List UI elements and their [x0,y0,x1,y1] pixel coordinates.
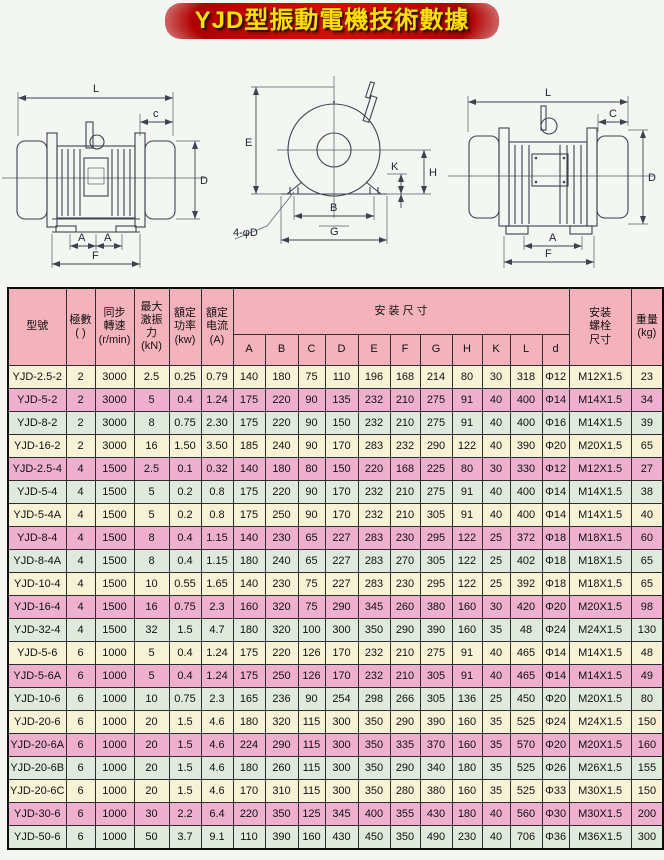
value-cell: 350 [358,757,390,780]
value-cell: 16 [134,435,169,458]
value-cell: 25 [482,688,510,711]
value-cell: 180 [233,757,265,780]
value-cell: 115 [298,757,325,780]
value-cell: Φ20 [542,435,569,458]
value-cell: 40 [482,826,510,849]
value-cell: 465 [510,642,542,665]
value-cell: 35 [482,780,510,803]
motor-end-view-drawing: E K H B G 4-φD [221,56,441,274]
value-cell: 170 [233,780,265,803]
value-cell: 122 [452,435,482,458]
value-cell: 227 [325,550,358,573]
table-row: YJD-50-661000503.79.11103901604304503504… [8,826,663,849]
value-cell: 1500 [95,504,134,527]
value-cell: 330 [510,458,542,481]
value-cell: 372 [510,527,542,550]
value-cell: 232 [358,642,390,665]
value-cell: M14X1.5 [569,481,631,504]
value-cell: 400 [510,389,542,412]
value-cell: Φ20 [542,734,569,757]
value-cell: 300 [325,780,358,803]
value-cell: 290 [420,435,452,458]
value-cell: 75 [298,573,325,596]
value-cell: 0.4 [169,527,201,550]
value-cell: 1000 [95,826,134,849]
model-cell: YJD-20-6A [8,734,66,757]
value-cell: 0.1 [169,458,201,481]
col-header-dim-G: G [420,335,452,366]
value-cell: 283 [358,527,390,550]
value-cell: 3000 [95,366,134,389]
col-header-model: 型號 [8,288,66,366]
value-cell: 122 [452,550,482,573]
value-cell: 1500 [95,573,134,596]
value-cell: 200 [631,803,663,826]
technical-drawings: L c [0,56,664,278]
dim-label: H [429,167,437,179]
value-cell: 283 [358,573,390,596]
value-cell: 295 [420,573,452,596]
col-header-dim-L: L [510,335,542,366]
datasheet-page: YJD型振動電機技術數據 L c [0,0,664,860]
value-cell: 1.5 [169,757,201,780]
value-cell: 39 [631,412,663,435]
value-cell: 214 [420,366,452,389]
value-cell: 224 [233,734,265,757]
value-cell: 175 [233,504,265,527]
value-cell: 140 [233,458,265,481]
value-cell: 230 [265,573,298,596]
value-cell: 38 [631,481,663,504]
model-cell: YJD-16-2 [8,435,66,458]
table-row: YJD-5-6A6100050.41.241752501261702322103… [8,665,663,688]
value-cell: 220 [358,458,390,481]
value-cell: 320 [265,619,298,642]
value-cell: 232 [390,435,420,458]
dim-label: A [104,232,112,244]
value-cell: 40 [482,803,510,826]
value-cell: 160 [298,826,325,849]
value-cell: Φ33 [542,780,569,803]
value-cell: 390 [510,435,542,458]
value-cell: 122 [452,527,482,550]
value-cell: 25 [482,573,510,596]
value-cell: 16 [134,596,169,619]
value-cell: 275 [420,642,452,665]
value-cell: 175 [233,481,265,504]
value-cell: 6 [66,734,95,757]
value-cell: 180 [452,757,482,780]
value-cell: 40 [482,642,510,665]
value-cell: 115 [298,734,325,757]
value-cell: 6 [66,711,95,734]
value-cell: 402 [510,550,542,573]
value-cell: 220 [265,481,298,504]
dim-label: A [549,232,557,244]
value-cell: 4 [66,550,95,573]
value-cell: 450 [510,688,542,711]
value-cell: 300 [325,757,358,780]
value-cell: 1.5 [169,780,201,803]
col-header-speed: 同步 轉速 (r/min) [95,288,134,366]
value-cell: 175 [233,665,265,688]
value-cell: 260 [390,596,420,619]
table-row: YJD-30-661000302.26.42203501253454003554… [8,803,663,826]
value-cell: 227 [325,527,358,550]
value-cell: 35 [482,711,510,734]
value-cell: 210 [390,642,420,665]
value-cell: 91 [452,665,482,688]
value-cell: 91 [452,481,482,504]
value-cell: M14X1.5 [569,412,631,435]
value-cell: M36X1.5 [569,826,631,849]
table-row: YJD-10-441500100.551.6514023075227283230… [8,573,663,596]
value-cell: 20 [134,711,169,734]
value-cell: 91 [452,642,482,665]
value-cell: 40 [482,389,510,412]
value-cell: 2 [66,435,95,458]
value-cell: 280 [390,780,420,803]
value-cell: 350 [358,780,390,803]
value-cell: 230 [452,826,482,849]
value-cell: M14X1.5 [569,665,631,688]
value-cell: 392 [510,573,542,596]
table-row: YJD-5-66100050.41.2417522012617023221027… [8,642,663,665]
value-cell: 136 [452,688,482,711]
value-cell: 90 [298,435,325,458]
value-cell: 1.15 [201,550,233,573]
value-cell: 150 [631,711,663,734]
value-cell: 5 [134,665,169,688]
value-cell: 232 [358,504,390,527]
value-cell: 1000 [95,642,134,665]
value-cell: Φ18 [542,550,569,573]
value-cell: 8 [134,527,169,550]
dim-label: E [245,137,252,149]
col-header-dim-H: H [452,335,482,366]
value-cell: 4.6 [201,780,233,803]
col-header-current: 額定 电流 (A) [201,288,233,366]
value-cell: 30 [482,596,510,619]
value-cell: 240 [265,550,298,573]
value-cell: 0.8 [201,504,233,527]
value-cell: 65 [298,527,325,550]
value-cell: 320 [265,711,298,734]
value-cell: 90 [298,481,325,504]
value-cell: 5 [134,642,169,665]
value-cell: 1000 [95,665,134,688]
value-cell: 305 [420,504,452,527]
value-cell: 290 [390,619,420,642]
value-cell: 210 [390,504,420,527]
value-cell: 6 [66,803,95,826]
value-cell: 180 [265,458,298,481]
value-cell: 227 [325,573,358,596]
value-cell: 140 [233,573,265,596]
col-header-dim-D: D [325,335,358,366]
value-cell: 1000 [95,803,134,826]
value-cell: 220 [265,642,298,665]
value-cell: 450 [358,826,390,849]
table-row: YJD-20-661000201.54.61803201153003502903… [8,711,663,734]
value-cell: Φ18 [542,527,569,550]
value-cell: 40 [482,412,510,435]
model-cell: YJD-8-2 [8,412,66,435]
value-cell: 150 [631,780,663,803]
value-cell: 232 [358,412,390,435]
value-cell: 9.1 [201,826,233,849]
value-cell: 210 [390,481,420,504]
value-cell: 1000 [95,780,134,803]
value-cell: 310 [265,780,298,803]
value-cell: 122 [452,573,482,596]
value-cell: 210 [390,665,420,688]
value-cell: 250 [265,665,298,688]
value-cell: 170 [325,665,358,688]
motor-side-view-right-drawing: L C [442,56,664,274]
dim-label: A [78,232,86,244]
value-cell: 390 [420,619,452,642]
value-cell: 140 [233,527,265,550]
value-cell: 236 [265,688,298,711]
value-cell: 185 [233,435,265,458]
value-cell: 49 [631,665,663,688]
dim-label: C [609,108,617,120]
value-cell: 1500 [95,481,134,504]
value-cell: M20X1.5 [569,734,631,757]
value-cell: M20X1.5 [569,688,631,711]
value-cell: 1000 [95,734,134,757]
value-cell: Φ12 [542,366,569,389]
value-cell: 160 [233,596,265,619]
value-cell: 25 [482,527,510,550]
value-cell: 20 [134,780,169,803]
value-cell: Φ20 [542,596,569,619]
value-cell: 345 [358,596,390,619]
motor-side-view-left-drawing: L c [0,56,220,274]
table-row: YJD-2.5-2230002.50.250.79140180751101961… [8,366,663,389]
value-cell: 90 [298,412,325,435]
model-cell: YJD-5-4 [8,481,66,504]
value-cell: 196 [358,366,390,389]
value-cell: 1500 [95,458,134,481]
value-cell: 318 [510,366,542,389]
value-cell: M14X1.5 [569,389,631,412]
value-cell: 560 [510,803,542,826]
value-cell: 2.5 [134,458,169,481]
value-cell: 150 [325,412,358,435]
value-cell: 430 [325,826,358,849]
value-cell: 420 [510,596,542,619]
value-cell: 2.2 [169,803,201,826]
value-cell: 335 [390,734,420,757]
value-cell: 20 [134,757,169,780]
value-cell: 110 [233,826,265,849]
value-cell: 40 [482,481,510,504]
value-cell: 80 [298,458,325,481]
value-cell: M20X1.5 [569,596,631,619]
dim-label: G [330,226,339,238]
col-header-force: 最大 激振 力 (kN) [134,288,169,366]
value-cell: 1000 [95,757,134,780]
dim-label: F [545,248,552,260]
value-cell: 25 [482,550,510,573]
value-cell: 340 [420,757,452,780]
value-cell: 525 [510,757,542,780]
value-cell: 8 [134,412,169,435]
value-cell: 400 [510,504,542,527]
value-cell: 8 [134,550,169,573]
model-cell: YJD-20-6C [8,780,66,803]
value-cell: 300 [325,711,358,734]
dim-label: D [200,175,208,187]
value-cell: Φ26 [542,757,569,780]
value-cell: 1500 [95,550,134,573]
value-cell: 30 [482,366,510,389]
value-cell: 168 [390,366,420,389]
value-cell: 0.75 [169,688,201,711]
value-cell: 706 [510,826,542,849]
col-header-dim-C: C [298,335,325,366]
value-cell: Φ20 [542,688,569,711]
value-cell: 150 [325,458,358,481]
value-cell: 1500 [95,596,134,619]
value-cell: 1.50 [169,435,201,458]
table-row: YJD-8-22300080.752.301752209015023221027… [8,412,663,435]
value-cell: Φ14 [542,481,569,504]
value-cell: 180 [265,366,298,389]
value-cell: 0.4 [169,550,201,573]
value-cell: 115 [298,780,325,803]
value-cell: 370 [420,734,452,757]
value-cell: 170 [325,504,358,527]
value-cell: 0.32 [201,458,233,481]
model-cell: YJD-32-4 [8,619,66,642]
value-cell: M26X1.5 [569,757,631,780]
model-cell: YJD-50-6 [8,826,66,849]
value-cell: 27 [631,458,663,481]
value-cell: Φ36 [542,826,569,849]
value-cell: 0.75 [169,596,201,619]
value-cell: Φ24 [542,711,569,734]
value-cell: 98 [631,596,663,619]
value-cell: 160 [631,734,663,757]
value-cell: 525 [510,780,542,803]
value-cell: 90 [298,688,325,711]
value-cell: 1.5 [169,619,201,642]
dim-label: c [153,108,159,120]
value-cell: 305 [420,550,452,573]
value-cell: 65 [631,550,663,573]
value-cell: Φ30 [542,803,569,826]
value-cell: 290 [390,711,420,734]
value-cell: 0.2 [169,481,201,504]
value-cell: 10 [134,573,169,596]
value-cell: 525 [510,711,542,734]
value-cell: 400 [358,803,390,826]
value-cell: 125 [298,803,325,826]
value-cell: 240 [265,435,298,458]
value-cell: M18X1.5 [569,573,631,596]
value-cell: 30 [482,458,510,481]
value-cell: 2.3 [201,596,233,619]
table-row: YJD-8-4A4150080.41.151802406522728327030… [8,550,663,573]
col-header-dim-K: K [482,335,510,366]
dim-label: F [92,250,99,262]
value-cell: 1.5 [169,734,201,757]
table-row: YJD-16-223000161.503.5018524090170283232… [8,435,663,458]
value-cell: 126 [298,642,325,665]
value-cell: M12X1.5 [569,366,631,389]
value-cell: M20X1.5 [569,435,631,458]
value-cell: 298 [358,688,390,711]
value-cell: 4 [66,619,95,642]
value-cell: 260 [265,757,298,780]
value-cell: 0.4 [169,389,201,412]
col-header-weight: 重量 (kg) [631,288,663,366]
model-cell: YJD-16-4 [8,596,66,619]
value-cell: 0.55 [169,573,201,596]
value-cell: 175 [233,412,265,435]
value-cell: M24X1.5 [569,711,631,734]
value-cell: 300 [631,826,663,849]
value-cell: 91 [452,504,482,527]
table-row: YJD-20-6C61000201.54.6170310115300350280… [8,780,663,803]
value-cell: 35 [482,734,510,757]
value-cell: 3.50 [201,435,233,458]
dim-label: K [391,161,399,173]
value-cell: 80 [452,366,482,389]
model-cell: YJD-5-6A [8,665,66,688]
value-cell: 283 [358,550,390,573]
value-cell: 350 [265,803,298,826]
value-cell: 320 [265,596,298,619]
value-cell: 160 [452,596,482,619]
value-cell: 4.6 [201,757,233,780]
value-cell: M14X1.5 [569,642,631,665]
value-cell: 4 [66,458,95,481]
value-cell: M14X1.5 [569,504,631,527]
col-header-dim-F: F [390,335,420,366]
value-cell: 80 [452,458,482,481]
value-cell: 91 [452,389,482,412]
value-cell: 232 [358,665,390,688]
value-cell: 32 [134,619,169,642]
model-cell: YJD-20-6 [8,711,66,734]
model-cell: YJD-20-6B [8,757,66,780]
dim-label: L [545,87,551,99]
value-cell: 305 [420,688,452,711]
value-cell: 220 [265,412,298,435]
value-cell: 225 [420,458,452,481]
value-cell: 570 [510,734,542,757]
value-cell: 430 [420,803,452,826]
value-cell: 230 [265,527,298,550]
value-cell: 140 [233,366,265,389]
value-cell: 4.6 [201,734,233,757]
value-cell: 65 [298,550,325,573]
value-cell: 40 [482,665,510,688]
value-cell: 5 [134,481,169,504]
value-cell: M30X1.5 [569,780,631,803]
value-cell: 266 [390,688,420,711]
dim-label: D [648,172,656,184]
value-cell: Φ14 [542,642,569,665]
value-cell: M30X1.5 [569,803,631,826]
value-cell: 80 [631,688,663,711]
model-cell: YJD-5-6 [8,642,66,665]
value-cell: 126 [298,665,325,688]
